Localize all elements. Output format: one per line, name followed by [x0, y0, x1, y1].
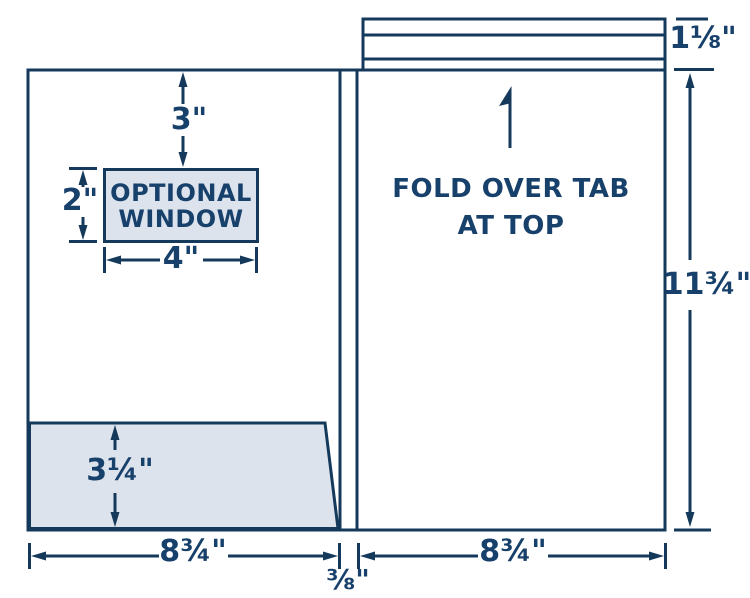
dim-label-right-width: 8¾" — [479, 537, 547, 567]
dim-label-pocket-height: 3¼" — [86, 456, 154, 486]
diagram-canvas — [0, 0, 750, 598]
window-label-line2: WINDOW — [118, 206, 243, 232]
optional-window-box: OPTIONAL WINDOW — [103, 168, 259, 243]
fold-over-note: FOLD OVER TAB AT TOP — [392, 171, 630, 245]
dim-label-left-width: 8¾" — [159, 537, 227, 567]
dim-label-window-height: 2" — [62, 186, 99, 216]
dim-label-tab-height: 1⅛" — [669, 24, 737, 54]
fold-note-line2: AT TOP — [392, 208, 630, 245]
pocket-shape — [30, 423, 339, 529]
window-label-line1: OPTIONAL — [110, 180, 252, 206]
dim-label-spine-width: ⅜" — [326, 566, 370, 594]
fold-note-line1: FOLD OVER TAB — [392, 171, 630, 208]
dim-label-panel-height: 11¾" — [663, 270, 750, 300]
dim-label-window-width: 4" — [163, 244, 200, 274]
fold-tab-outline — [363, 19, 665, 70]
folder-dimension-diagram: OPTIONAL WINDOW FOLD OVER TAB AT TOP 3" … — [0, 0, 750, 598]
dim-label-window-offset: 3" — [171, 105, 208, 135]
